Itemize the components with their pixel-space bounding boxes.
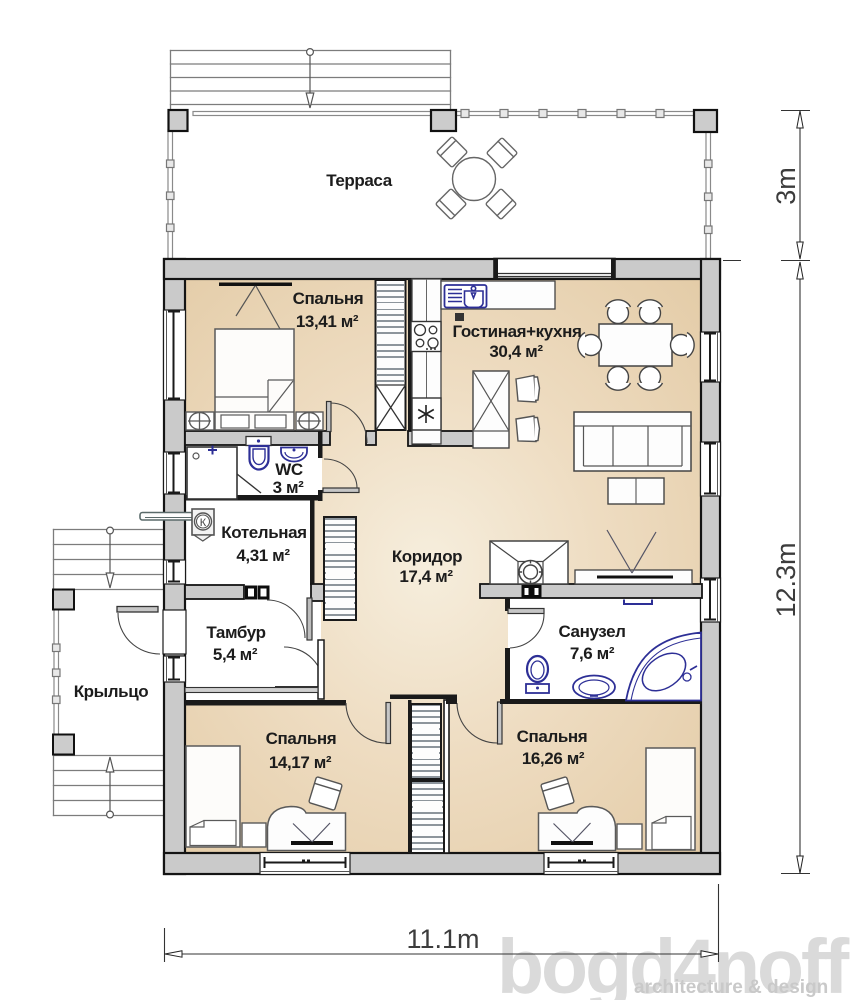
- svg-text:WC: WC: [275, 460, 303, 479]
- svg-text:30,4 м²: 30,4 м²: [489, 342, 543, 361]
- svg-text:Крыльцо: Крыльцо: [74, 682, 149, 701]
- svg-text:Терраса: Терраса: [326, 171, 392, 190]
- svg-text:Спальня: Спальня: [293, 289, 364, 308]
- svg-text:Спальня: Спальня: [266, 729, 337, 748]
- svg-text:Котельная: Котельная: [221, 523, 306, 542]
- svg-text:7,6 м²: 7,6 м²: [570, 644, 615, 663]
- svg-text:4,31 м²: 4,31 м²: [236, 546, 290, 565]
- svg-text:11.1m: 11.1m: [406, 924, 479, 954]
- svg-text:К: К: [200, 517, 207, 529]
- svg-text:3 м²: 3 м²: [273, 478, 305, 497]
- svg-text:architecture & design: architecture & design: [634, 977, 828, 998]
- svg-text:Тамбур: Тамбур: [206, 623, 265, 642]
- svg-text:Коридор: Коридор: [392, 547, 462, 566]
- svg-text:Гостиная+кухня: Гостиная+кухня: [453, 322, 582, 341]
- svg-text:Спальня: Спальня: [517, 727, 588, 746]
- svg-text:17,4 м²: 17,4 м²: [399, 567, 453, 586]
- svg-text:14,17 м²: 14,17 м²: [269, 753, 332, 772]
- svg-text:Санузел: Санузел: [558, 622, 625, 641]
- svg-text:13,41 м²: 13,41 м²: [296, 312, 359, 331]
- svg-text:3m: 3m: [771, 167, 801, 205]
- svg-text:5,4 м²: 5,4 м²: [213, 645, 258, 664]
- svg-text:16,26 м²: 16,26 м²: [522, 749, 585, 768]
- svg-text:12.3m: 12.3m: [771, 542, 801, 617]
